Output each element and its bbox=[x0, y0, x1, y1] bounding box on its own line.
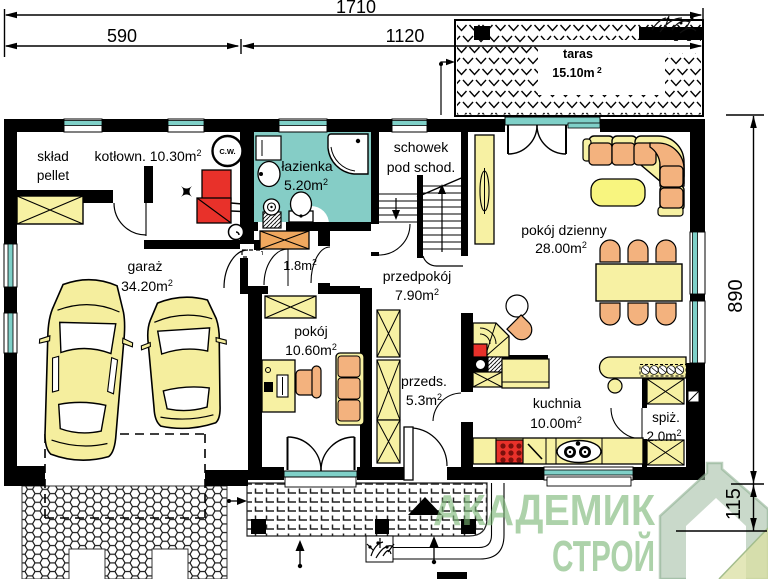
svg-text:1710: 1710 bbox=[336, 0, 376, 17]
svg-text:890: 890 bbox=[725, 279, 747, 312]
svg-text:АКАДЕМИК: АКАДЕМИК bbox=[433, 486, 655, 535]
svg-text:10.00m2: 10.00m2 bbox=[530, 415, 582, 431]
svg-text:pellet: pellet bbox=[37, 168, 70, 183]
svg-text:taras: taras bbox=[563, 47, 593, 61]
svg-text:2.0m2: 2.0m2 bbox=[646, 428, 681, 444]
svg-text:łazienka: łazienka bbox=[281, 158, 333, 174]
svg-text:10.60m2: 10.60m2 bbox=[285, 342, 337, 358]
svg-text:C.W.: C.W. bbox=[219, 147, 235, 156]
svg-text:pokój: pokój bbox=[294, 323, 327, 339]
svg-text:pod schod.: pod schod. bbox=[387, 159, 456, 175]
svg-text:skład: skład bbox=[37, 149, 69, 164]
svg-text:7.90m2: 7.90m2 bbox=[395, 287, 439, 303]
svg-text:28.00m2: 28.00m2 bbox=[535, 240, 587, 256]
svg-text:garaż: garaż bbox=[127, 258, 162, 274]
svg-text:590: 590 bbox=[107, 26, 137, 46]
svg-text:schowek: schowek bbox=[394, 139, 449, 155]
svg-text:przeds.: przeds. bbox=[401, 373, 447, 389]
svg-text:5.20m2: 5.20m2 bbox=[284, 177, 328, 193]
svg-text:spiż.: spiż. bbox=[652, 410, 680, 425]
svg-text:34.20m2: 34.20m2 bbox=[121, 278, 173, 294]
svg-text:1120: 1120 bbox=[386, 26, 425, 46]
svg-text:15.10m 2: 15.10m 2 bbox=[552, 65, 602, 80]
svg-text:kuchnia: kuchnia bbox=[533, 395, 581, 411]
svg-text:1.8m2: 1.8m2 bbox=[283, 257, 317, 273]
svg-text:pokój dzienny: pokój dzienny bbox=[521, 222, 607, 238]
svg-text:СТРОЙ: СТРОЙ bbox=[552, 530, 655, 579]
svg-text:kotłown. 10.30m2: kotłown. 10.30m2 bbox=[95, 148, 202, 164]
svg-text:115: 115 bbox=[723, 488, 745, 520]
svg-text:przedpokój: przedpokój bbox=[383, 268, 452, 284]
svg-text:5.3m2: 5.3m2 bbox=[406, 392, 442, 408]
